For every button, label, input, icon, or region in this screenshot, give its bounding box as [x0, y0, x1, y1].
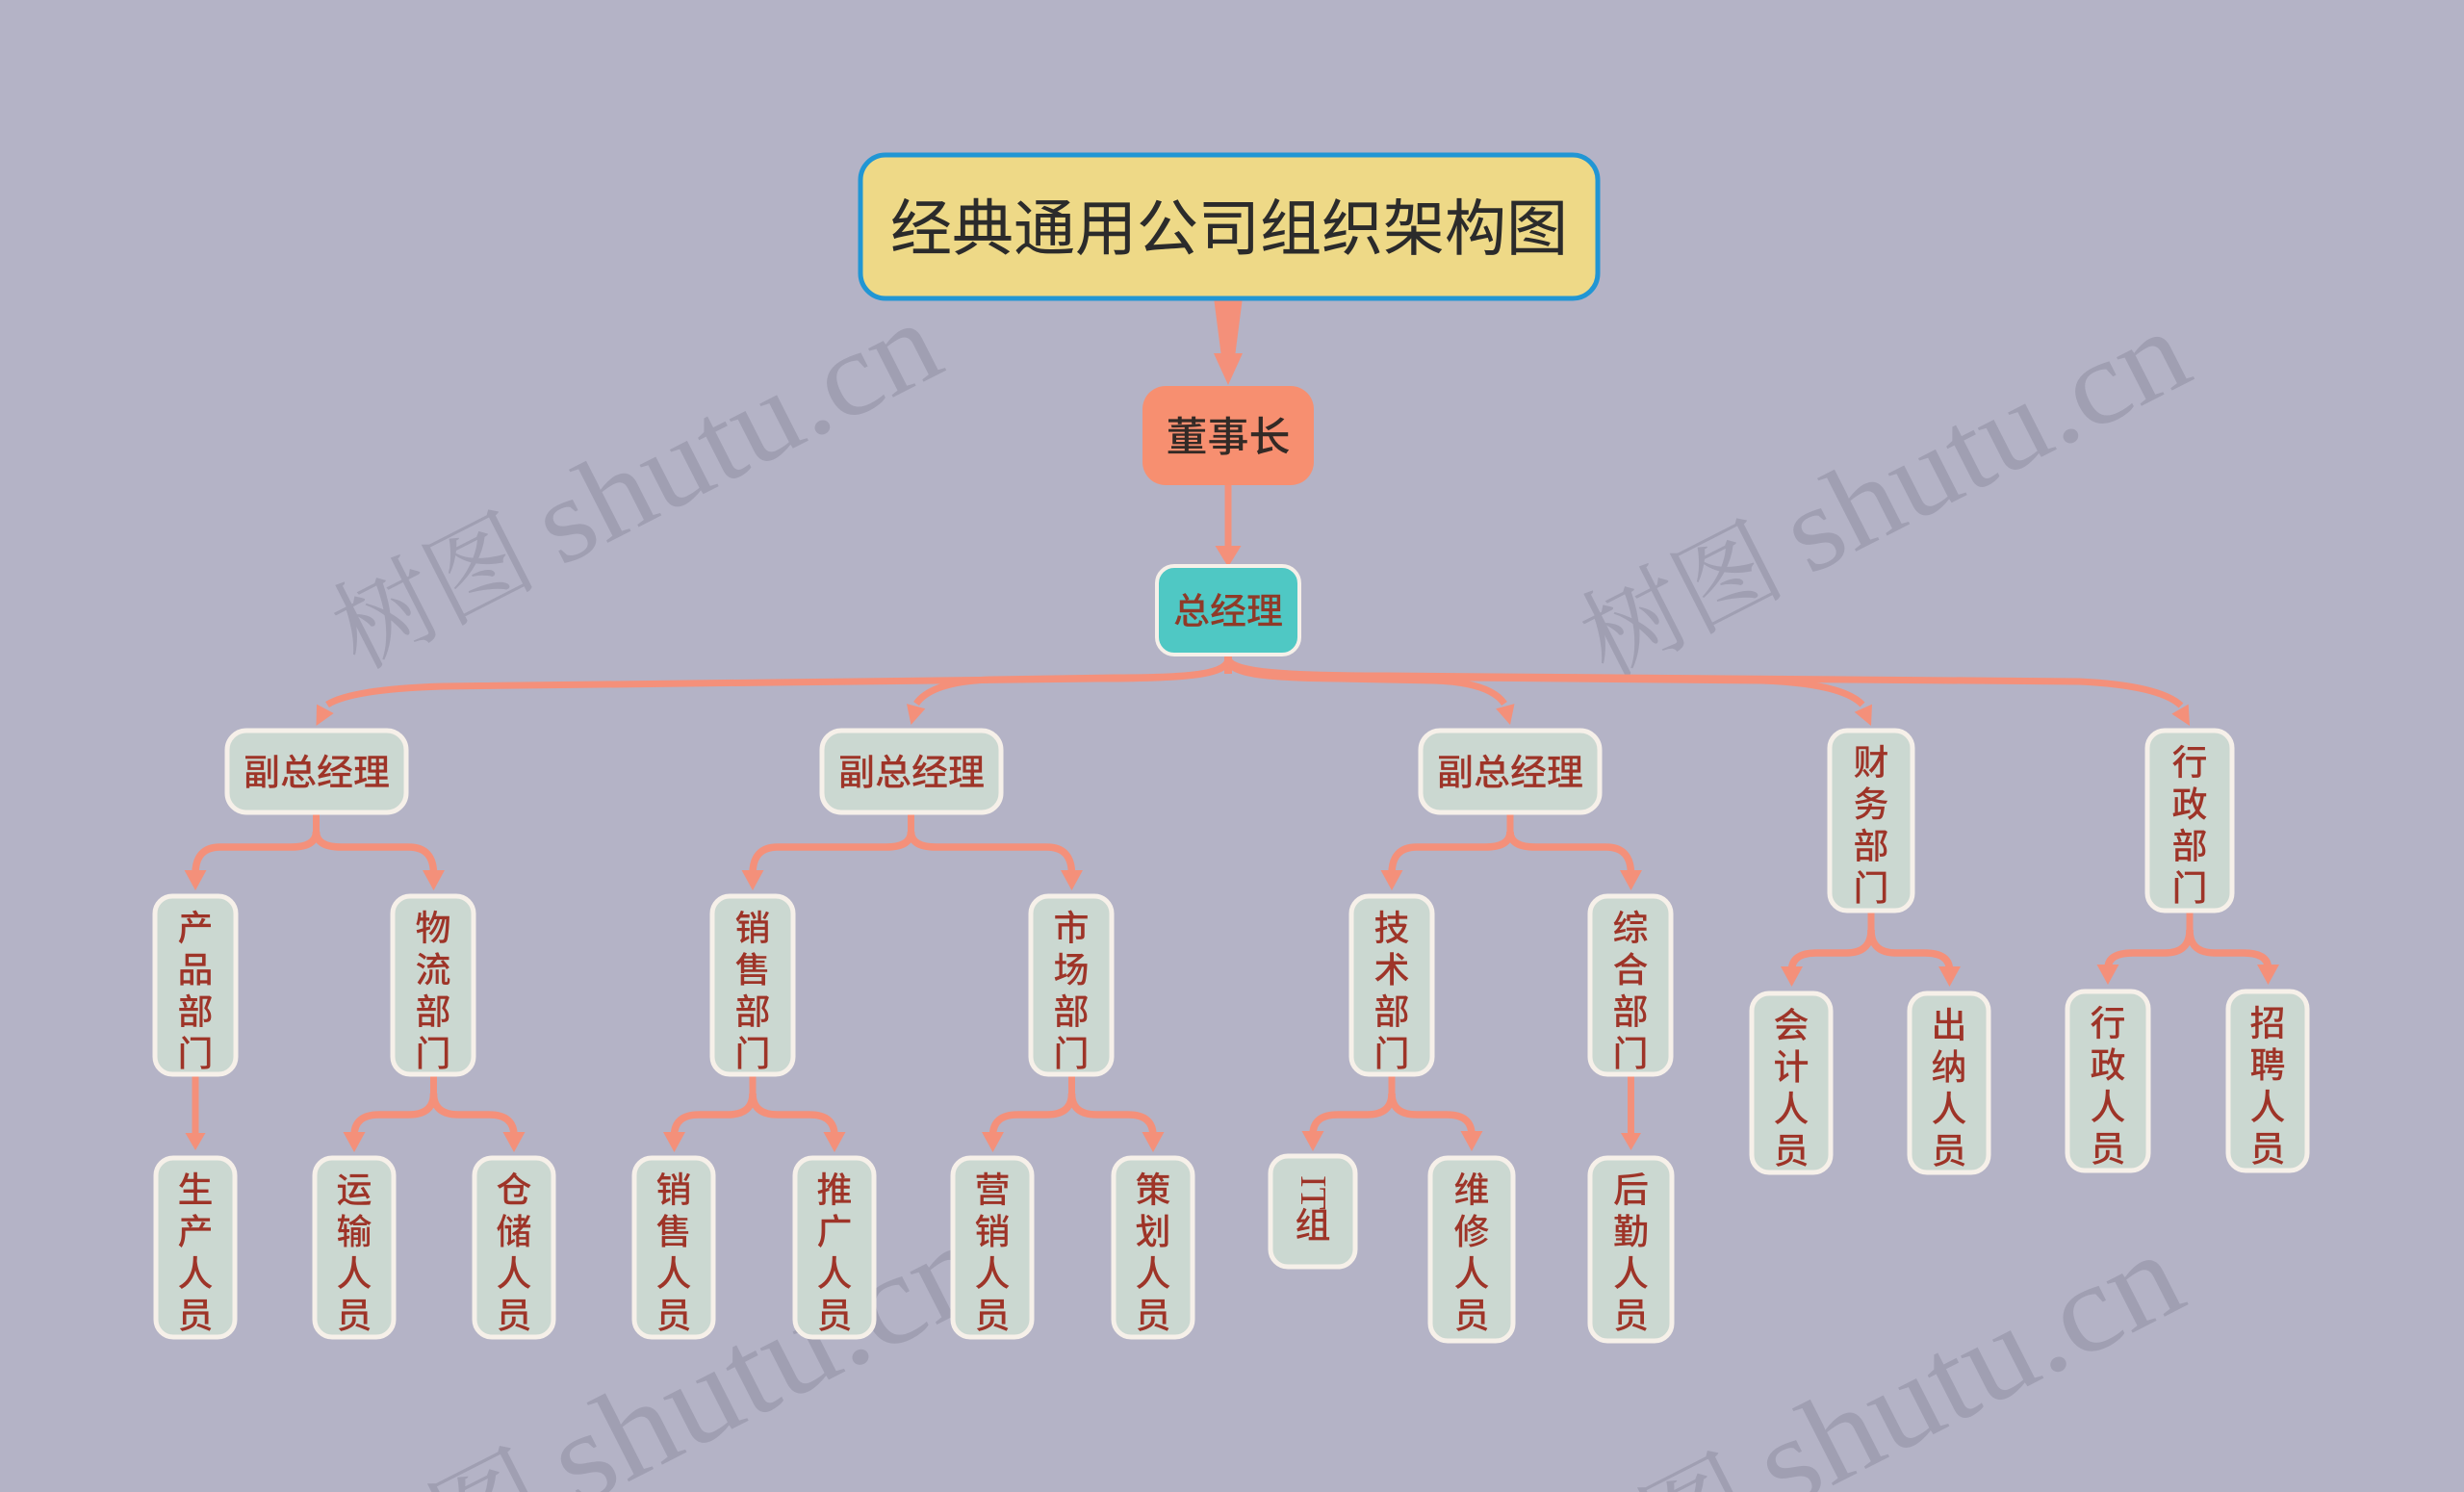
svg-text:IT: IT — [1293, 1175, 1333, 1210]
